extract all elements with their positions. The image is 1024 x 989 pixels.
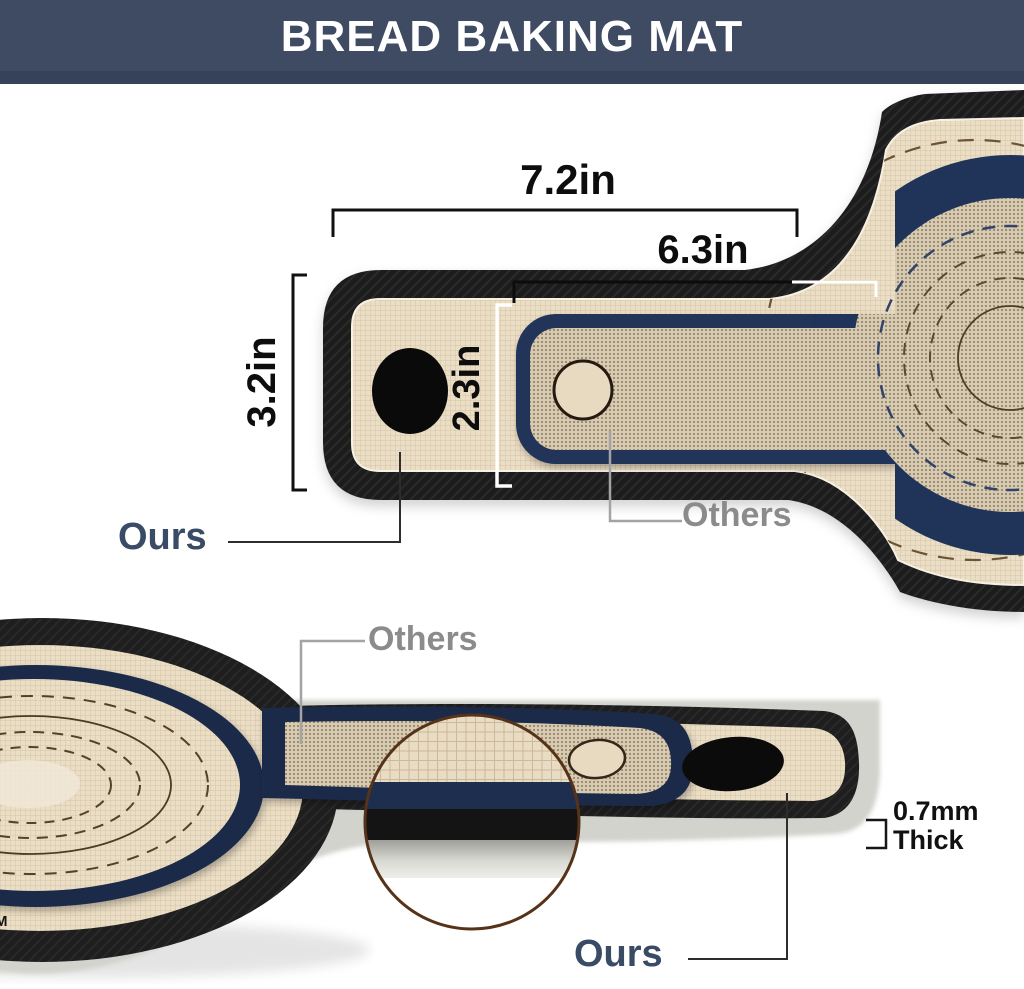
label-bottom-ours: Ours bbox=[574, 933, 663, 976]
top-others-hanging-hole bbox=[554, 361, 612, 419]
edge-watermark: M bbox=[0, 913, 8, 930]
label-top-others: Others bbox=[682, 496, 792, 535]
page-title: BREAD BAKING MAT bbox=[0, 12, 1024, 62]
mat-illustration-canvas bbox=[0, 0, 1024, 989]
header-banner: BREAD BAKING MAT bbox=[0, 0, 1024, 84]
thickness-bracket bbox=[866, 820, 886, 848]
product-infographic: BREAD BAKING MAT 7.2in 6.3in 3.2in 2.3in… bbox=[0, 0, 1024, 989]
dim-bracket-3-2in bbox=[293, 275, 307, 490]
thickness-value: 0.7mm bbox=[893, 797, 979, 826]
label-bottom-others: Others bbox=[368, 620, 478, 659]
thickness-word: Thick bbox=[893, 826, 979, 855]
thickness-callout: 0.7mm Thick bbox=[893, 797, 979, 855]
top-ours-hanging-hole bbox=[372, 348, 448, 434]
dim-label-ours-width: 3.2in bbox=[240, 312, 284, 452]
dim-label-others-length: 6.3in bbox=[603, 228, 803, 273]
dim-label-total-length: 7.2in bbox=[468, 156, 668, 204]
label-top-ours: Ours bbox=[118, 516, 207, 559]
side-view-mats bbox=[0, 618, 880, 978]
dim-label-others-width: 2.3in bbox=[445, 318, 489, 458]
